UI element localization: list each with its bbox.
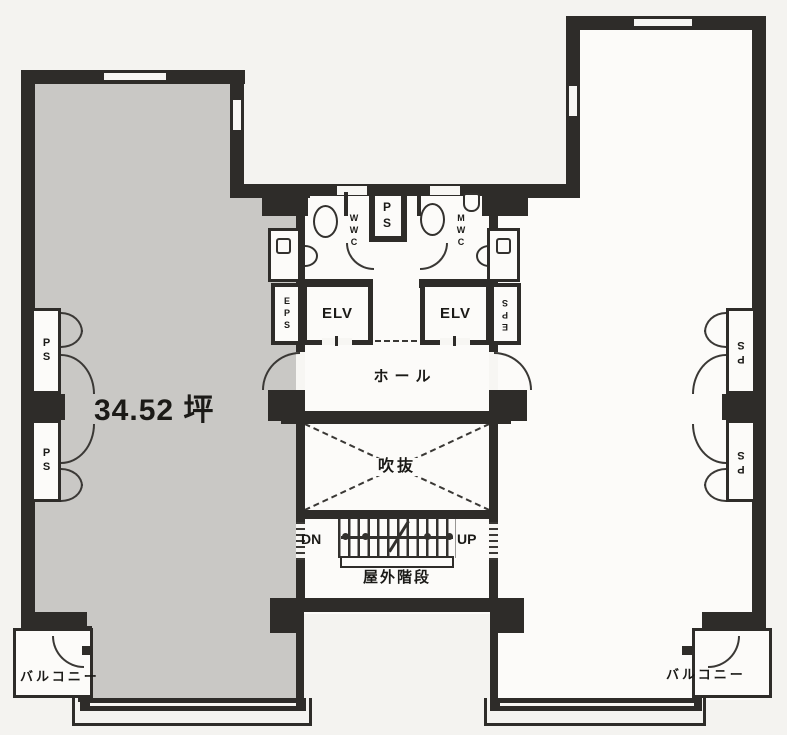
ps-closet-label: PS [381,200,393,232]
wall-left-room-right-upper [230,70,244,198]
stairs-down-label: DN [301,532,335,546]
window-right-room-top [634,19,692,26]
threshold-dash-corridor [375,340,417,342]
atrium-label: 吹抜 [374,458,420,476]
eps-shaft-left: EPS [271,283,302,345]
urinal-men [463,193,480,212]
wall-left-room-bottom-innerline [90,703,296,706]
window-right-room-left-upper [569,86,577,116]
wall-right-room-bottom-innerline [500,703,694,706]
wall-right-room-left-lower [490,612,498,700]
wall-hall-bottom [281,411,511,424]
window-left-room-top [104,73,166,80]
floor-plan: WWC MWC PS EPS EPS ELV ELV ホール 吹抜 DN UP … [0,0,787,735]
eps-shaft-right: EPS [490,283,521,345]
wall-left-room-right-lower [296,612,304,700]
toilet-men [420,203,445,236]
ps-right-upper-label: PS [736,337,747,365]
sink-closet-left [268,228,301,282]
stairs-up-label: UP [457,532,491,546]
stair-stringer [340,556,454,568]
floor-area-label: 34.52 坪 [94,396,274,426]
window-left-room-right-upper [233,100,241,130]
ps-shaft-right-lower: PS [726,420,756,502]
door-tick-balcony-left [82,646,93,655]
balcony-left-label: バルコニー [20,670,100,683]
ps-left-lower-label: PS [41,447,52,475]
eps-left-label: EPS [282,296,291,332]
door-tick-balcony-right [682,646,693,655]
ps-shaft-left-upper: PS [31,308,61,394]
wall-ps-closet-bottom [369,236,407,242]
partition-women [344,192,348,216]
wc-men-label: MWC [456,213,465,249]
wall-ps-left-divider [21,394,65,420]
outdoor-stairs-label: 屋外階段 [345,570,449,585]
eps-right-label: EPS [501,296,510,332]
ps-right-lower-label: PS [736,447,747,475]
balcony-right-label: バルコニー [666,668,746,681]
wall-ps-closet-left [369,190,375,242]
stair-dot-3 [424,533,431,540]
wc-women-label: WWC [349,213,358,249]
stair-dot-2 [362,533,369,540]
toilet-women [313,205,338,238]
hall-label: ホール [355,369,455,384]
stair-dot-1 [342,533,349,540]
ps-left-upper-label: PS [41,337,52,365]
wall-core-bottom [296,598,498,612]
ps-shaft-left-lower: PS [31,420,61,502]
partition-men [417,192,421,216]
sink-closet-left-basin [276,238,291,254]
atrium-void: 吹抜 [305,424,489,510]
wall-ps-right-divider [722,394,766,420]
door-gap-wc-women-top [337,186,367,195]
stair-dot-4 [446,533,453,540]
door-gap-wc-men-top [430,186,460,195]
elevator-right-label: ELV [440,306,471,321]
ps-shaft-right-upper: PS [726,308,756,394]
elevator-right-door-tick [453,336,456,346]
elevator-left-label: ELV [322,306,353,321]
sink-closet-right [487,228,520,282]
wall-ps-closet-right [401,190,407,242]
sink-closet-right-basin [496,238,511,254]
elevator-left-door-tick [335,336,338,346]
